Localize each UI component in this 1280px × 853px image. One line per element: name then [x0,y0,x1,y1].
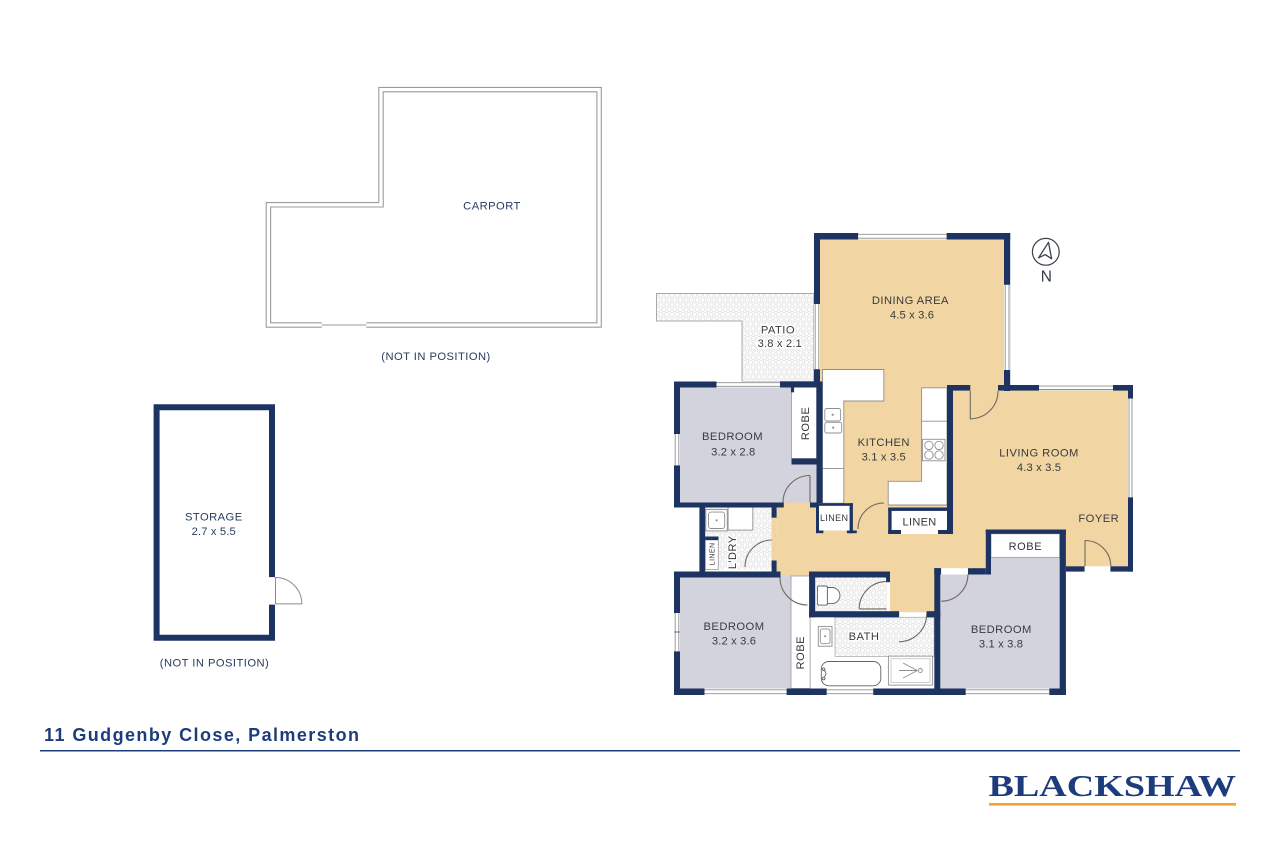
svg-text:KITCHEN: KITCHEN [858,437,910,449]
svg-text:2.7 x 5.5: 2.7 x 5.5 [192,526,236,538]
svg-text:LINEN: LINEN [903,517,937,529]
svg-text:L'DRY: L'DRY [727,535,739,569]
svg-text:LINEN: LINEN [709,543,716,566]
svg-text:PATIO: PATIO [761,325,795,337]
svg-text:BATH: BATH [849,631,880,643]
svg-text:STORAGE: STORAGE [185,511,243,523]
svg-text:DINING AREA: DINING AREA [872,295,949,307]
svg-text:ROBE: ROBE [1009,541,1043,553]
svg-text:3.2 x 2.8: 3.2 x 2.8 [711,447,755,459]
svg-text:3.1 x 3.8: 3.1 x 3.8 [979,639,1023,651]
svg-text:BEDROOM: BEDROOM [704,621,765,633]
svg-text:CARPORT: CARPORT [463,201,521,213]
svg-text:4.5 x 3.6: 4.5 x 3.6 [890,310,934,322]
svg-text:BEDROOM: BEDROOM [702,431,763,443]
svg-text:ROBE: ROBE [795,636,807,670]
svg-text:LIVING ROOM: LIVING ROOM [999,447,1079,459]
svg-text:N: N [1041,269,1052,286]
svg-text:11 Gudgenby Close, Palmerston: 11 Gudgenby Close, Palmerston [44,725,359,745]
svg-text:3.1 x 3.5: 3.1 x 3.5 [862,451,906,463]
svg-text:3.2 x 3.6: 3.2 x 3.6 [712,636,756,648]
svg-text:(NOT IN POSITION): (NOT IN POSITION) [160,658,269,670]
svg-text:(NOT IN POSITION): (NOT IN POSITION) [381,351,490,363]
svg-text:LINEN: LINEN [820,513,849,523]
svg-text:BLACKSHAW: BLACKSHAW [989,768,1237,803]
svg-text:BEDROOM: BEDROOM [971,624,1032,636]
svg-text:ROBE: ROBE [800,407,812,441]
svg-text:3.8 x 2.1: 3.8 x 2.1 [758,338,802,350]
svg-text:FOYER: FOYER [1078,513,1119,525]
svg-text:4.3 x 3.5: 4.3 x 3.5 [1017,462,1061,474]
